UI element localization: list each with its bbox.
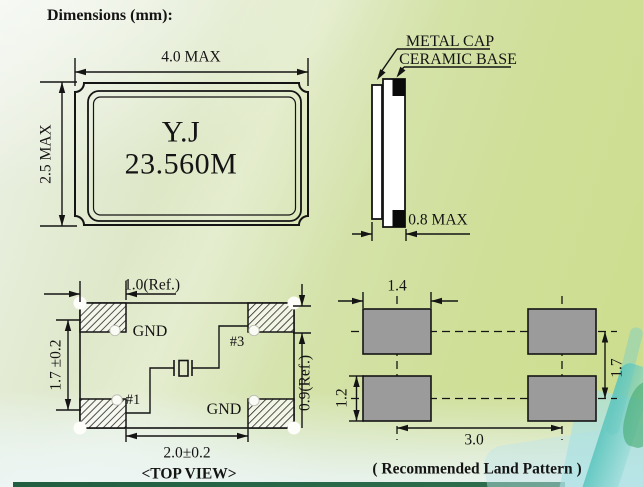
dim-land-row-pitch: 1.7 [609,358,625,377]
top-view-drawing [44,281,311,442]
ceramic-base-label: CERAMIC BASE [399,52,517,68]
top-view-caption: <TOP VIEW> [141,466,236,482]
dim-topview-height: 1.7 ±0.2 [48,339,64,390]
gnd-label-bottom: GND [207,402,242,418]
dim-thickness: 0.8 MAX [408,212,467,228]
datasheet-dimensions-page: Dimensions (mm): Y.J 23.560M 4.0 MAX 2.5… [0,0,643,487]
dim-package-height: 2.5 MAX [38,124,54,183]
dim-topview-inner-span: 2.0±0.2 [163,445,210,461]
package-marking: Y.J 23.560M [125,117,238,182]
dim-package-width: 4.0 MAX [161,49,220,65]
land-pattern-caption: ( Recommended Land Pattern ) [372,461,581,477]
page-title: Dimensions (mm): [47,7,173,25]
land-pattern-drawing [338,292,617,440]
drawing-linework [0,0,643,487]
dim-land-col-pitch: 3.0 [464,432,483,448]
dim-topview-pad-height: 0.9(Ref.) [297,355,313,411]
pin3-label: #3 [230,335,245,350]
metal-cap-label: METAL CAP [406,34,494,50]
marking-vendor-code: Y.J [125,117,238,149]
dim-land-pad-height: 1.2 [334,388,350,407]
pin1-label: #1 [126,393,141,408]
dim-pad-offset: 1.0(Ref.) [124,277,180,293]
dim-land-pad-width: 1.4 [387,278,406,294]
marking-frequency: 23.560M [125,149,238,181]
gnd-label-top: GND [133,324,168,340]
